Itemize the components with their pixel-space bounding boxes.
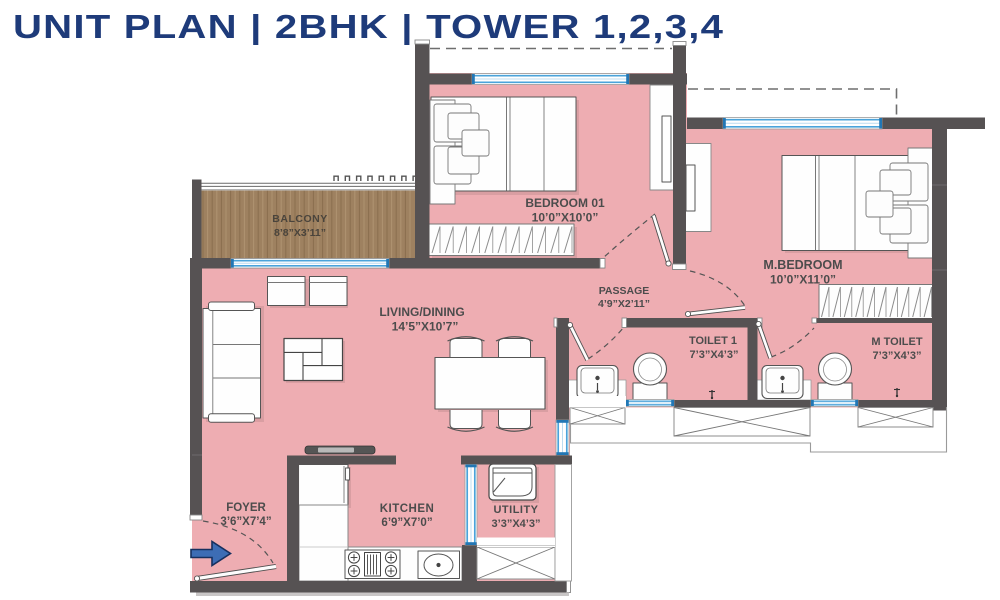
svg-text:BEDROOM 01: BEDROOM 01 (525, 196, 605, 210)
svg-text:3’6”X7’4”: 3’6”X7’4” (220, 516, 271, 528)
svg-text:UTILITY: UTILITY (493, 504, 538, 516)
svg-text:8’8”X3’11”: 8’8”X3’11” (274, 227, 326, 239)
svg-text:M.BEDROOM: M.BEDROOM (763, 258, 842, 272)
svg-text:10’0”X11’0”: 10’0”X11’0” (770, 273, 836, 287)
svg-text:6’9”X7’0”: 6’9”X7’0” (381, 517, 432, 529)
svg-text:KITCHEN: KITCHEN (380, 503, 435, 515)
svg-text:TOILET 1: TOILET 1 (689, 335, 737, 347)
svg-text:3’3”X4’3”: 3’3”X4’3” (492, 518, 541, 530)
svg-text:BALCONY: BALCONY (272, 213, 327, 225)
svg-text:7’3”X4’3”: 7’3”X4’3” (690, 349, 739, 361)
svg-text:LIVING/DINING: LIVING/DINING (379, 305, 464, 319)
svg-text:FOYER: FOYER (226, 502, 266, 514)
svg-text:10’0”X10’0”: 10’0”X10’0” (532, 211, 599, 225)
svg-text:4’9”X2’11”: 4’9”X2’11” (598, 298, 650, 310)
svg-text:PASSAGE: PASSAGE (599, 285, 650, 297)
svg-text:M TOILET: M TOILET (871, 336, 922, 348)
svg-text:7’3”X4’3”: 7’3”X4’3” (873, 350, 922, 362)
svg-text:14’5”X10’7”: 14’5”X10’7” (392, 320, 459, 334)
